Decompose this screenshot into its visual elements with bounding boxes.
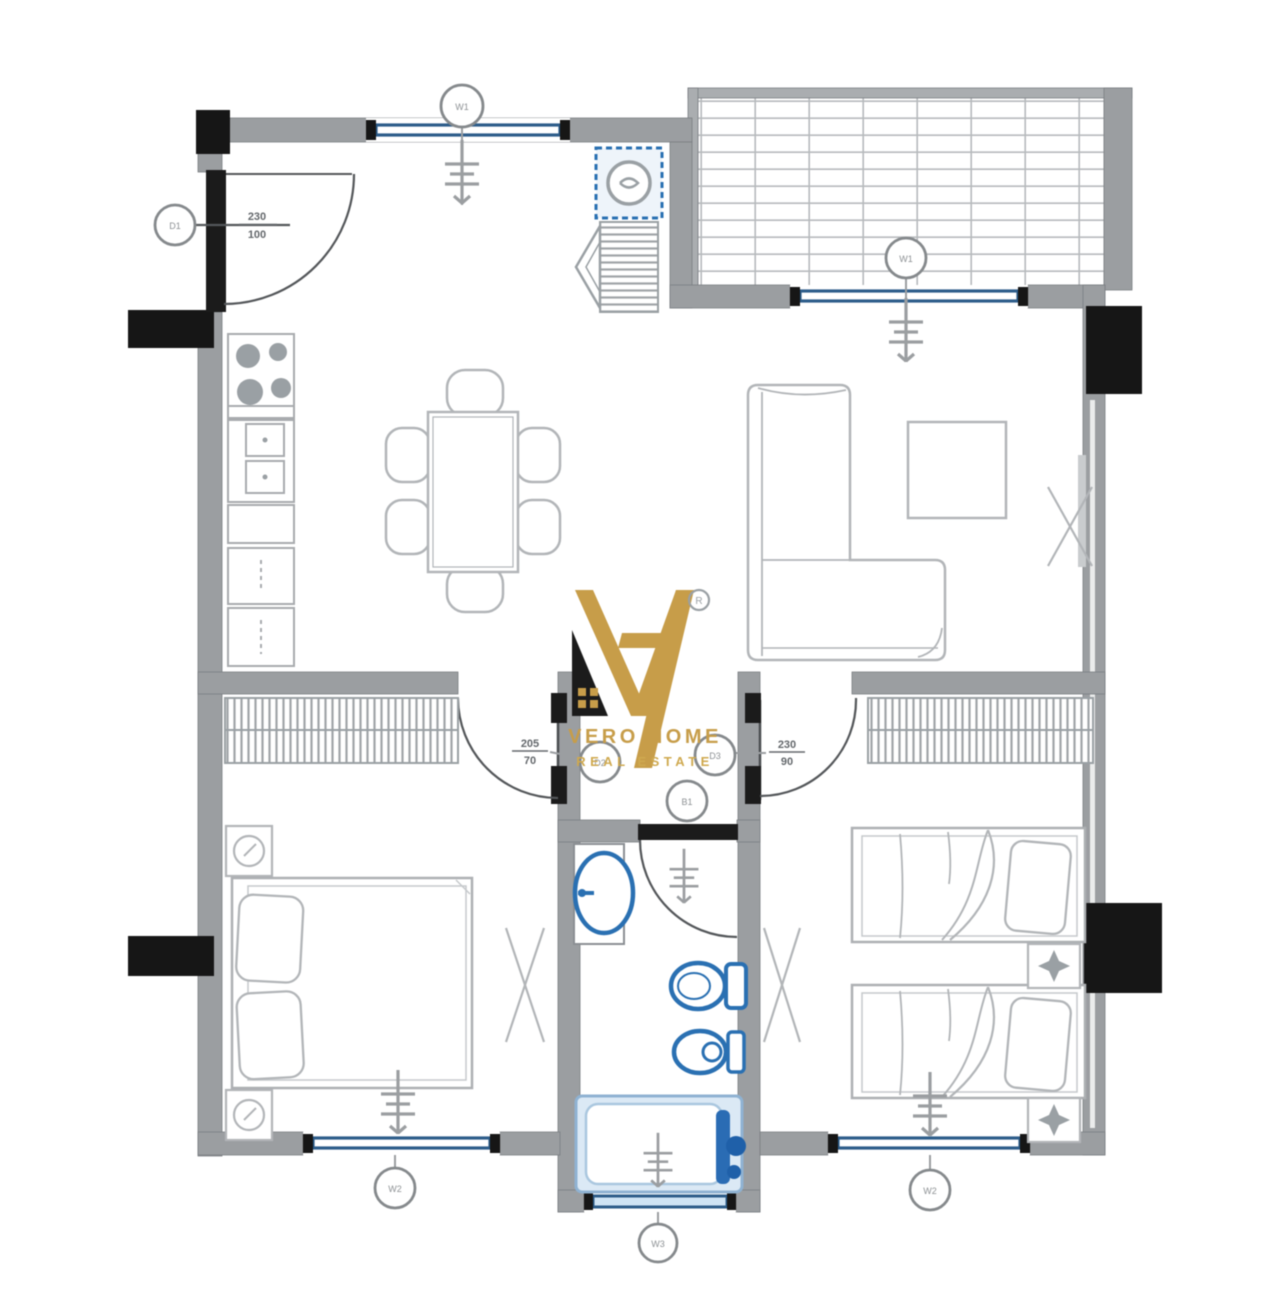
tag-label: W3: [651, 1239, 665, 1249]
pillow: [235, 894, 303, 983]
bathroom: [574, 844, 746, 1192]
window-cap: [490, 1134, 500, 1153]
tag-label: W1: [899, 254, 913, 264]
toilet-bowl: [671, 963, 725, 1009]
wall-bottom-left-b: [500, 1132, 560, 1155]
column-left-middle: [128, 936, 214, 976]
dining-table: [428, 412, 518, 572]
window-cap: [303, 1134, 313, 1153]
dim-entrance-top: 230: [248, 211, 266, 223]
bidet-bowl: [674, 1031, 726, 1073]
counter-shelf: [228, 406, 294, 418]
dining-chair: [516, 500, 560, 554]
column-entrance-corner: [196, 110, 230, 154]
door-swing-arc: [760, 698, 856, 796]
tag-label: W2: [388, 1184, 402, 1194]
window-cap: [790, 287, 800, 306]
vent-unit: [600, 222, 658, 312]
stove-burner: [271, 378, 291, 398]
stove-burner: [269, 343, 287, 361]
bidet: [674, 1031, 744, 1073]
wardrobe-left-bottom: [225, 730, 458, 763]
dining-chair: [386, 500, 430, 554]
pillow: [1004, 840, 1072, 935]
tag-label: B1: [681, 797, 692, 807]
dining-chair: [386, 428, 430, 482]
wall-left: [198, 312, 222, 1156]
living-room: [748, 385, 1092, 660]
door-swing-arc: [458, 698, 558, 798]
registered-letter: R: [695, 596, 702, 607]
wall-kitchen-terrace: [670, 142, 692, 308]
coffee-table: [908, 422, 1006, 518]
wall-bottom-right-a: [760, 1132, 828, 1155]
bidet-tank: [728, 1032, 744, 1072]
bedroom-left-door: [458, 693, 567, 804]
column-right-middle: [1084, 903, 1162, 993]
entrance-door: [206, 170, 354, 312]
wall-bathroom-bottom-b: [736, 1190, 760, 1212]
bathtub-inner: [586, 1104, 722, 1184]
floor-plan-page: D1 W1 W1 D2 D3 B1 W2 W3 W2 230 100 205 7…: [0, 0, 1284, 1315]
vero-home-watermark: R VERO HOME REAL ESTATE: [568, 590, 722, 769]
tag-label: W1: [455, 102, 469, 112]
entrance-door-swing-arc: [224, 174, 354, 304]
counter-segment: [228, 505, 294, 543]
vent-arrow: [576, 226, 600, 308]
dim-entrance-bottom: 100: [248, 229, 266, 241]
dim-door-left-top: 205: [521, 738, 539, 750]
window-cap: [366, 120, 376, 140]
stove-burner: [236, 344, 260, 368]
sink-drain: [263, 438, 268, 443]
radiator-mark-right: [764, 928, 800, 1042]
terrace-wall-top: [688, 88, 1132, 98]
sliding-door-mark: [1048, 455, 1092, 567]
window-cap: [584, 1192, 593, 1210]
door-jamb: [745, 693, 761, 723]
window-cap: [560, 120, 570, 140]
entrance-door-leaf: [206, 170, 226, 312]
sink-drain: [263, 475, 268, 480]
tag-label: W2: [923, 1186, 937, 1196]
wall-middle-left: [198, 672, 458, 694]
column-left-top: [128, 310, 214, 348]
dim-door-left-bottom: 70: [524, 755, 536, 767]
wardrobe-left-top: [225, 698, 458, 730]
dining-set: [386, 370, 560, 612]
bathroom-door: [638, 824, 738, 937]
bathroom-door-leaf: [638, 824, 738, 840]
window-terrace: [790, 285, 1028, 308]
kitchen-counter: [228, 334, 294, 666]
utility-units: [576, 148, 662, 312]
dining-chair: [516, 428, 560, 482]
door-jamb: [551, 693, 567, 723]
door-swing-arc: [640, 840, 737, 937]
measure-mark: [670, 849, 699, 903]
window-cap: [727, 1192, 736, 1210]
dim-door-right-top: 230: [778, 739, 796, 751]
single-bed-2: [852, 985, 1085, 1098]
toilet-tank: [726, 964, 746, 1008]
bedroom-right-door: [745, 693, 856, 804]
dining-chair: [447, 370, 503, 416]
pillow: [236, 991, 304, 1080]
window-cap: [828, 1134, 838, 1153]
dim-door-right-bottom: 90: [781, 756, 793, 768]
brand-subtitle: REAL ESTATE: [576, 754, 714, 769]
wardrobe-right-top: [868, 698, 1093, 730]
wall-bathroom-bottom-a: [558, 1190, 584, 1212]
apartment-floor-plan: D1 W1 W1 D2 D3 B1 W2 W3 W2 230 100 205 7…: [0, 0, 1284, 1315]
door-jamb: [745, 766, 761, 804]
wardrobe-right-bottom: [868, 730, 1093, 763]
bathtub: [576, 1096, 746, 1192]
wall-bathroom-door-right: [737, 820, 760, 842]
bathtub-knob: [727, 1165, 741, 1179]
radiator-mark-left: [506, 928, 544, 1042]
window-bedroom-left: [303, 1132, 500, 1155]
terrace-wall-right: [1104, 88, 1132, 290]
stove-burner: [237, 379, 263, 405]
pillow: [1004, 997, 1072, 1092]
wall-bathroom-door-left: [558, 820, 640, 842]
tag-label: D1: [169, 221, 181, 231]
wall-middle-right: [852, 672, 1105, 694]
bathtub-knob: [726, 1136, 746, 1156]
boiler-dial: [608, 162, 650, 204]
column-right-top: [1086, 306, 1142, 394]
brand-name: VERO HOME: [568, 726, 722, 748]
window-cap: [1018, 287, 1028, 306]
toilet: [671, 963, 746, 1009]
wall-top-living-left: [670, 285, 790, 308]
single-bed-1: [852, 828, 1085, 942]
